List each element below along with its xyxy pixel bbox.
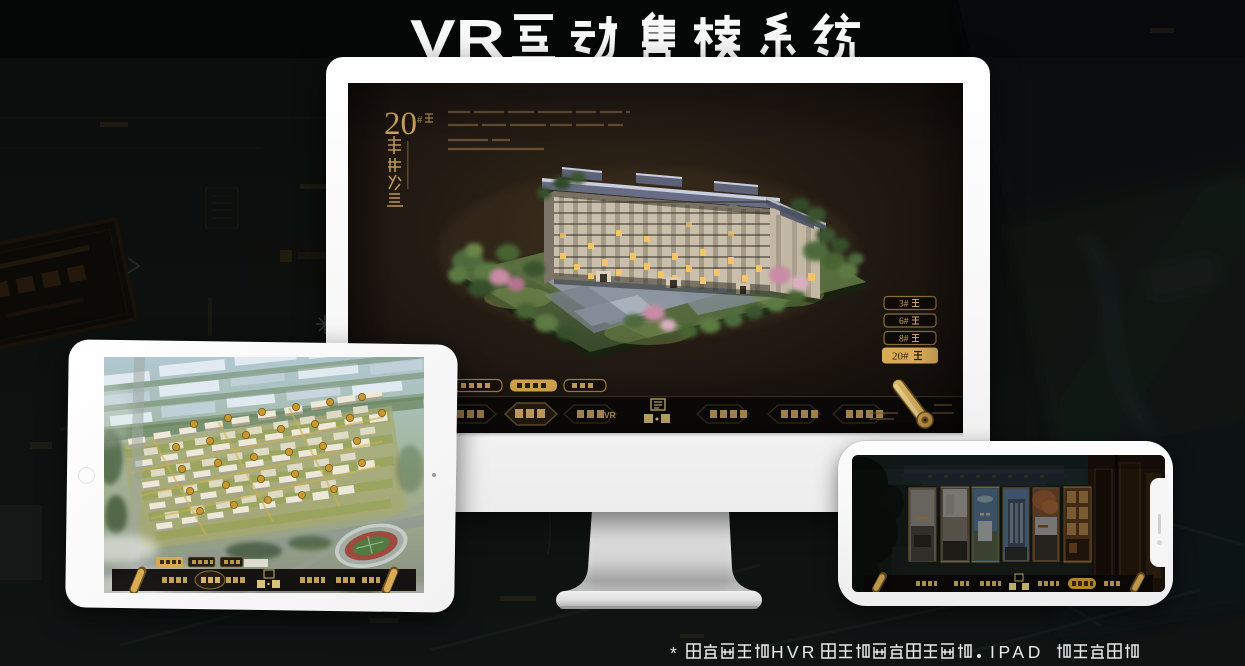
svg-text:HVR: HVR — [771, 642, 818, 662]
svg-text:IPAD: IPAD — [990, 642, 1044, 662]
svg-text:VR: VR — [410, 8, 505, 64]
svg-text:*: * — [670, 643, 677, 663]
